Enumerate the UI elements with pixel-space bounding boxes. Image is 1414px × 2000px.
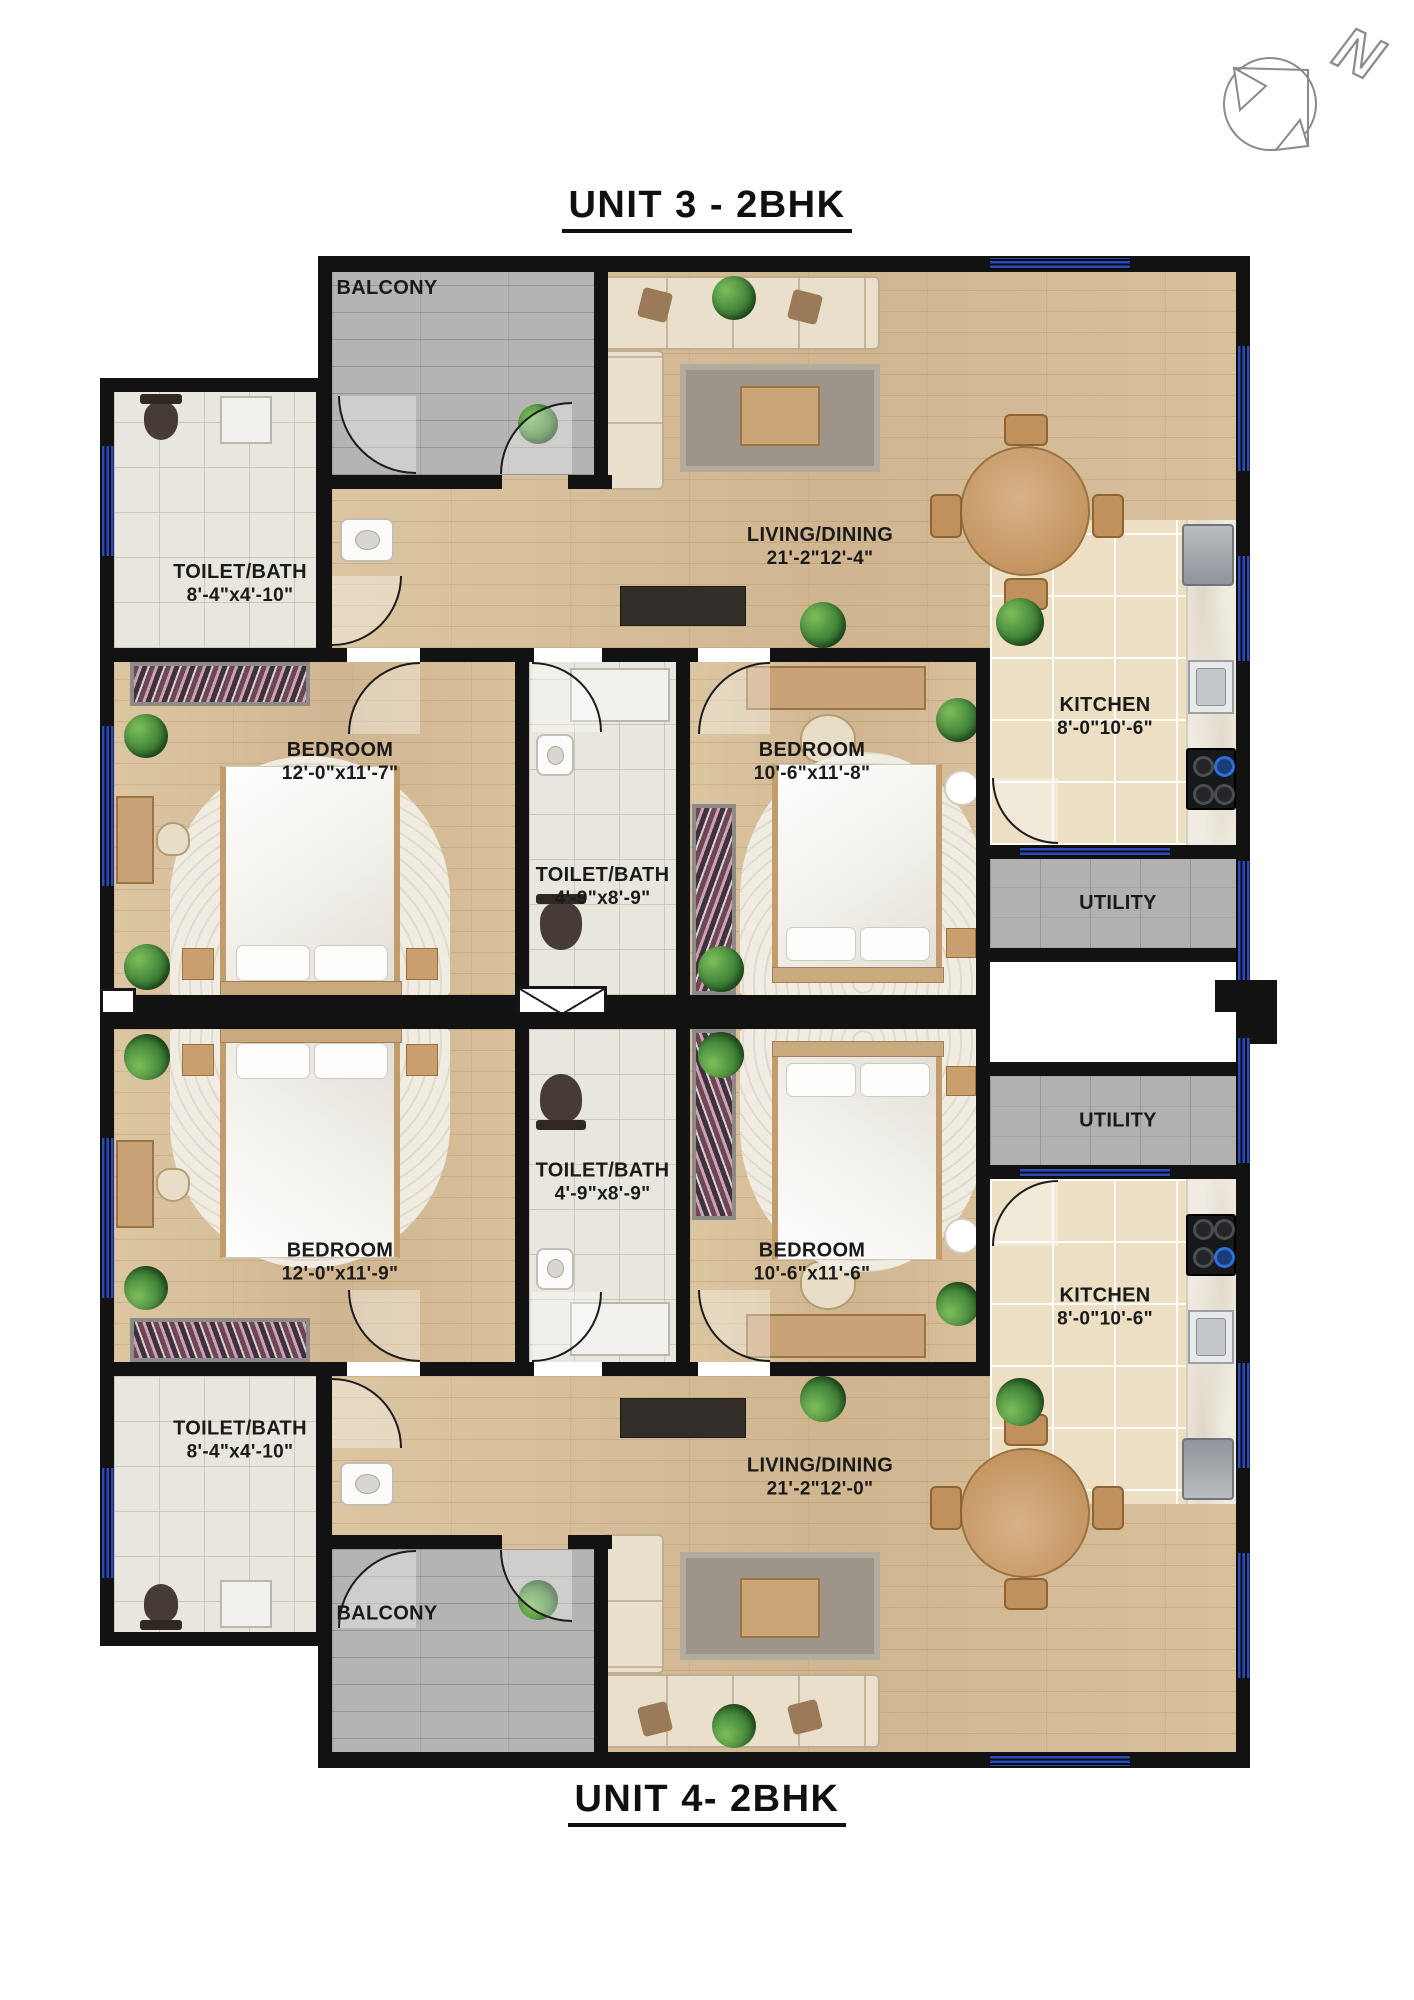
floorplan-page: { "page": { "title_top": "UNIT 3 - 2BHK"…	[0, 0, 1414, 2000]
wall-segment	[990, 1062, 1250, 1076]
wall-segment	[100, 648, 347, 662]
room-name: BEDROOM	[712, 1238, 912, 1262]
plant	[124, 1034, 170, 1080]
room-name: TOILET/BATH	[500, 1158, 705, 1182]
nightstand	[946, 928, 976, 958]
shower	[220, 396, 272, 444]
wall-segment	[676, 662, 690, 995]
window	[100, 726, 114, 886]
bedroom-right-label: BEDROOM10'-6"x11'-8"	[712, 738, 912, 786]
room-name: TOILET/BATH	[140, 560, 340, 584]
toilet-left-label: TOILET/BATH8'-4"x4'-10"	[140, 560, 340, 608]
headboard	[772, 967, 944, 983]
plant	[698, 1032, 744, 1078]
nightstand	[182, 948, 214, 980]
bedroom-left-label: BEDROOM12'-0"x11'-7"	[240, 738, 440, 786]
plant	[712, 1704, 756, 1748]
service-gap	[990, 1012, 1236, 1062]
wall-segment	[976, 1012, 990, 1376]
window	[100, 1468, 114, 1578]
room-name: TOILET/BATH	[140, 1416, 340, 1440]
compass-n-label: N	[1324, 13, 1394, 93]
stove-burner-blue	[1214, 756, 1235, 777]
plant	[800, 1376, 846, 1422]
wall-segment	[100, 1362, 347, 1376]
toilet-left-label: TOILET/BATH8'-4"x4'-10"	[140, 1416, 340, 1464]
plant	[698, 946, 744, 992]
room-dims: 12'-0"x11'-9"	[240, 1263, 440, 1286]
dining-table	[960, 446, 1090, 576]
desk	[746, 666, 926, 710]
stove-burner	[1193, 1219, 1214, 1240]
wall-segment	[318, 475, 502, 489]
window	[100, 446, 114, 556]
bedroom-right-label: BEDROOM10'-6"x11'-6"	[712, 1238, 912, 1286]
window	[1236, 346, 1250, 471]
nightstand	[406, 1044, 438, 1076]
unit4-title: UNIT 4- 2BHK	[0, 1778, 1414, 1821]
balcony-label: BALCONY	[317, 1602, 457, 1626]
pillow	[786, 927, 856, 961]
dining-chair	[1004, 1578, 1048, 1610]
wall-segment	[316, 1376, 332, 1632]
plant	[996, 1378, 1044, 1426]
pillow	[236, 1043, 310, 1079]
dining-chair	[1004, 414, 1048, 446]
desk	[116, 796, 154, 884]
room-name: BALCONY	[317, 1602, 457, 1626]
plant	[800, 602, 846, 648]
dining-table	[960, 1448, 1090, 1578]
sofa-chaise	[600, 1534, 664, 1674]
bed	[772, 764, 942, 982]
desk-chair	[156, 1168, 190, 1202]
unit3-plan: BALCONY LIVING/DINING21'-2"12'-4" KITCHE…	[100, 256, 1250, 1012]
gas-stove	[1186, 1214, 1236, 1276]
unit4-title-text: UNIT 4- 2BHK	[568, 1778, 845, 1827]
room-dims: 4'-9"x8'-9"	[500, 1183, 705, 1206]
wall-segment	[976, 648, 990, 1012]
room-name: KITCHEN	[1005, 1283, 1205, 1307]
bed	[220, 766, 400, 995]
gas-stove	[1186, 748, 1236, 810]
room-name: BEDROOM	[240, 1238, 440, 1262]
washbasin	[536, 1248, 574, 1290]
room-dims: 21'-2"12'-4"	[700, 547, 940, 570]
headboard	[772, 1041, 944, 1057]
unit3-title: UNIT 3 - 2BHK	[0, 184, 1414, 227]
wall-segment	[594, 1535, 608, 1768]
toilet-mid-label: TOILET/BATH4'-9"x8'-9"	[500, 1158, 705, 1206]
wall-segment	[568, 475, 612, 489]
room-dims: 21'-2"12'-0"	[700, 1478, 940, 1501]
wall-segment	[602, 648, 698, 662]
room-name: BEDROOM	[712, 738, 912, 762]
room-name: UTILITY	[1018, 891, 1218, 915]
stool	[944, 770, 980, 806]
plant	[936, 698, 980, 742]
wall-segment	[316, 392, 332, 648]
plant	[996, 598, 1044, 646]
room-dims: 8'-0"10'-6"	[1005, 717, 1205, 740]
room-name: BEDROOM	[240, 738, 440, 762]
dining-chair	[1092, 1486, 1124, 1530]
toilet-floor	[114, 392, 316, 648]
north-compass-icon: N	[1178, 6, 1398, 174]
nightstand	[406, 948, 438, 980]
plant	[936, 1282, 980, 1326]
window	[1236, 556, 1250, 661]
wall-segment	[420, 1362, 534, 1376]
wall-segment	[770, 1362, 990, 1376]
stool	[944, 1218, 980, 1254]
kitchen-label: KITCHEN8'-0"10'-6"	[1005, 1283, 1205, 1331]
room-name: TOILET/BATH	[500, 863, 705, 887]
desk-chair	[156, 822, 190, 856]
tv-console	[620, 586, 746, 626]
wall-segment	[770, 648, 990, 662]
pillow	[314, 945, 388, 981]
bed	[772, 1042, 942, 1260]
room-dims: 10'-6"x11'-8"	[712, 762, 912, 785]
window	[990, 258, 1130, 270]
utility-label: UTILITY	[1018, 891, 1218, 915]
pillow	[236, 945, 310, 981]
desk	[746, 1314, 926, 1358]
pillow	[860, 1063, 930, 1097]
living-label: LIVING/DINING21'-2"12'-0"	[700, 1453, 940, 1501]
stove-burner	[1214, 784, 1235, 805]
window	[1020, 1167, 1170, 1177]
pillow	[786, 1063, 856, 1097]
room-name: LIVING/DINING	[700, 523, 940, 547]
room-dims: 10'-6"x11'-6"	[712, 1263, 912, 1286]
kitchen-label: KITCHEN8'-0"10'-6"	[1005, 693, 1205, 741]
fridge	[1182, 1438, 1234, 1500]
washbasin	[340, 518, 394, 562]
window	[1236, 1038, 1250, 1163]
wall-segment	[100, 378, 332, 392]
coffee-table	[740, 1578, 820, 1638]
unit3-title-text: UNIT 3 - 2BHK	[562, 184, 851, 233]
room-name: UTILITY	[1018, 1109, 1218, 1133]
stove-burner	[1193, 784, 1214, 805]
living-label: LIVING/DINING21'-2"12'-4"	[700, 523, 940, 571]
toilet-floor	[114, 1376, 316, 1632]
utility-label: UTILITY	[1018, 1109, 1218, 1133]
tv-console	[620, 1398, 746, 1438]
wall-segment	[100, 1632, 332, 1646]
stove-burner	[1214, 1219, 1235, 1240]
wardrobe	[130, 662, 310, 706]
bed	[220, 1029, 400, 1258]
window	[1236, 1553, 1250, 1678]
room-name: KITCHEN	[1005, 693, 1205, 717]
pillow	[860, 927, 930, 961]
room-dims: 8'-0"10'-6"	[1005, 1308, 1205, 1331]
window	[1236, 1363, 1250, 1468]
window	[1020, 847, 1170, 857]
balcony-label: BALCONY	[317, 276, 457, 300]
plant	[124, 944, 170, 990]
wall-segment	[420, 648, 534, 662]
coffee-table	[740, 386, 820, 446]
bedroom-left-label: BEDROOM12'-0"x11'-9"	[240, 1238, 440, 1286]
stove-burner-blue	[1214, 1247, 1235, 1268]
nightstand	[182, 1044, 214, 1076]
toilet-wc	[144, 1584, 178, 1622]
wall-segment	[602, 1362, 698, 1376]
plant	[124, 714, 168, 758]
window	[1236, 861, 1250, 986]
room-dims: 8'-4"x4'-10"	[140, 584, 340, 607]
plant	[124, 1266, 168, 1310]
fridge	[1182, 524, 1234, 586]
wall-segment	[318, 1535, 502, 1549]
wall-segment	[100, 1012, 990, 1029]
wall-segment	[568, 1535, 612, 1549]
toilet-mid-label: TOILET/BATH4'-9"x8'-9"	[500, 863, 705, 911]
unit4-plan: BALCONY LIVING/DINING21'-2"12'-0" KITCHE…	[100, 1012, 1250, 1768]
toilet-wc	[540, 1074, 582, 1122]
stove-burner	[1193, 1247, 1214, 1268]
window	[100, 1138, 114, 1298]
window	[990, 1754, 1130, 1766]
sofa-chaise	[600, 350, 664, 490]
plant	[712, 276, 756, 320]
room-name: BALCONY	[317, 276, 457, 300]
room-dims: 4'-9"x8'-9"	[500, 887, 705, 910]
room-dims: 12'-0"x11'-7"	[240, 762, 440, 785]
wall-segment	[594, 256, 608, 489]
stove-burner	[1193, 756, 1214, 777]
desk	[116, 1140, 154, 1228]
wall-segment	[990, 948, 1250, 962]
room-dims: 8'-4"x4'-10"	[140, 1441, 340, 1464]
toilet-wc	[144, 402, 178, 440]
wardrobe	[130, 1318, 310, 1362]
wall-segment	[515, 662, 529, 995]
service-gap	[990, 962, 1236, 1012]
washbasin	[536, 734, 574, 776]
nightstand	[946, 1066, 976, 1096]
room-name: LIVING/DINING	[700, 1453, 940, 1477]
pillow	[314, 1043, 388, 1079]
dining-chair	[1092, 494, 1124, 538]
washbasin	[340, 1462, 394, 1506]
shower	[220, 1580, 272, 1628]
